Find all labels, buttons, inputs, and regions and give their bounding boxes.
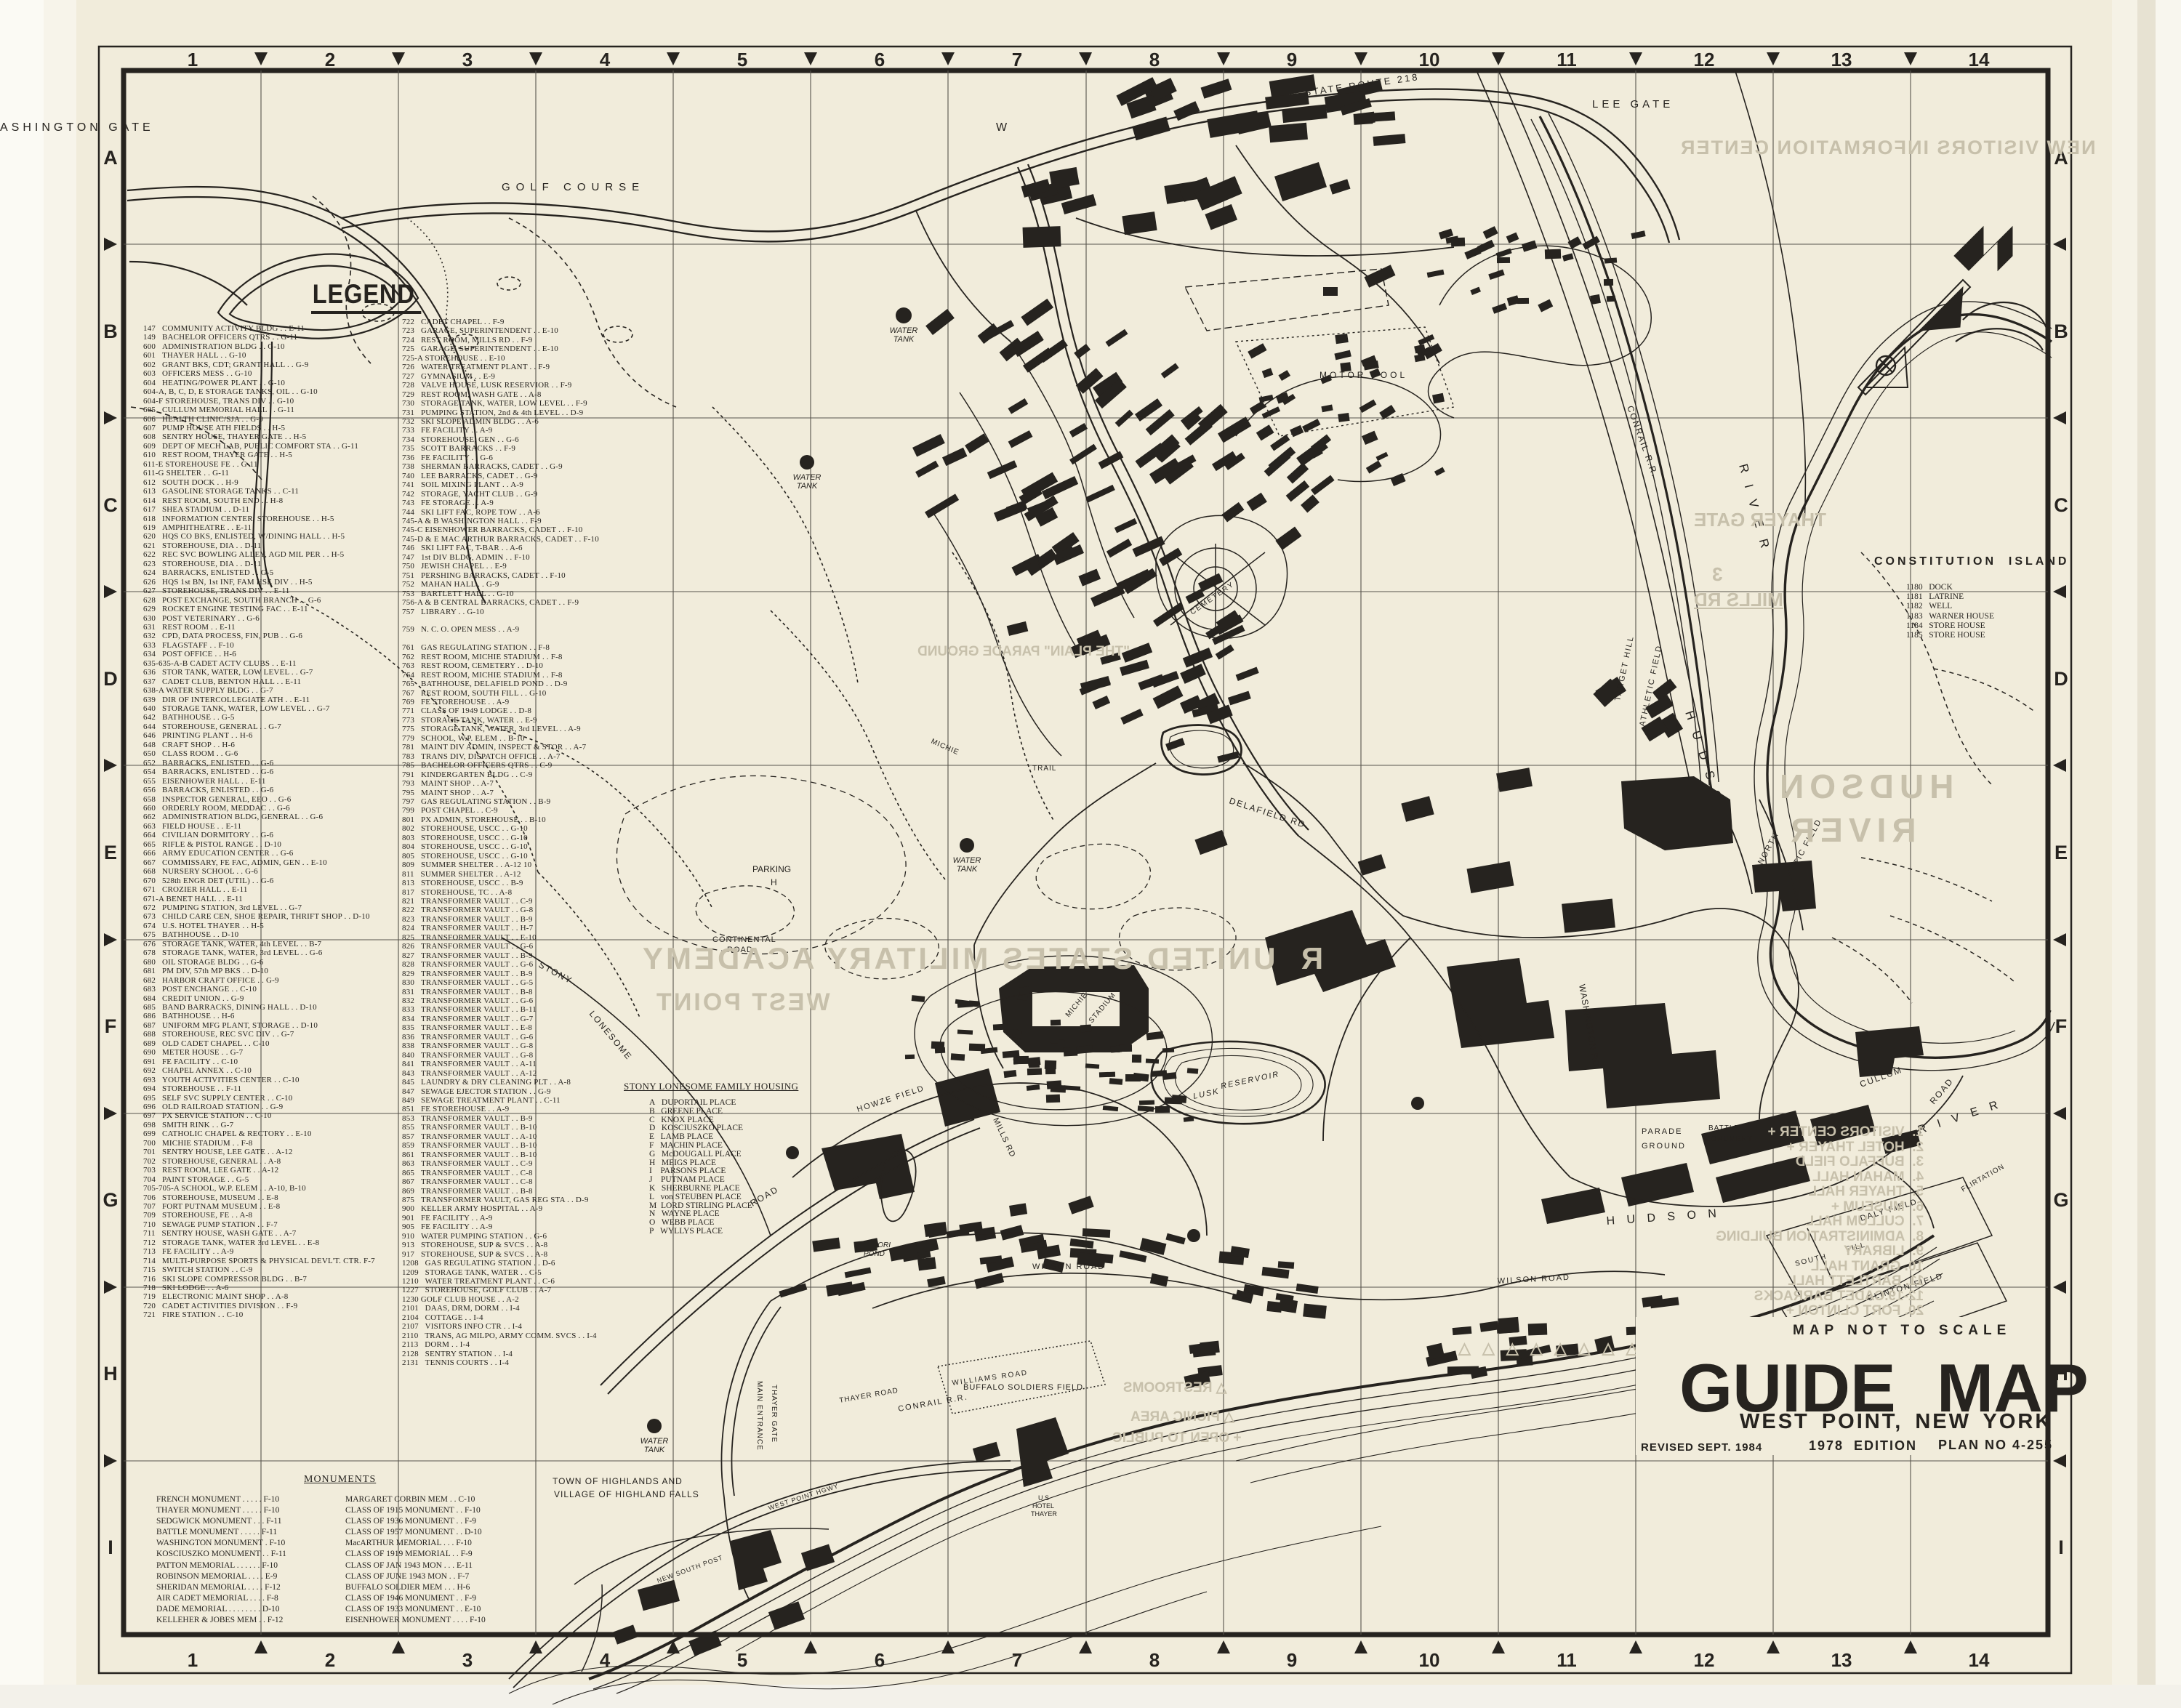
svg-text:WILSON ROAD: WILSON ROAD xyxy=(1032,1262,1105,1271)
svg-text:HOTEL: HOTEL xyxy=(1032,1502,1054,1510)
svg-text:7: 7 xyxy=(1012,49,1022,71)
svg-text:6: 6 xyxy=(875,49,885,71)
svg-text:9: 9 xyxy=(1287,1649,1297,1671)
svg-text:THAYER ROAD: THAYER ROAD xyxy=(839,1387,899,1405)
svg-text:THAYER: THAYER xyxy=(1031,1510,1057,1518)
svg-text:D: D xyxy=(2054,668,2068,690)
svg-text:THAYER GATE: THAYER GATE xyxy=(770,1385,778,1443)
svg-text:G: G xyxy=(103,1189,118,1211)
svg-text:6: 6 xyxy=(875,1649,885,1671)
svg-text:C: C xyxy=(103,494,118,516)
svg-text:VILLAGE OF HIGHLAND FALLS: VILLAGE OF HIGHLAND FALLS xyxy=(554,1489,699,1499)
svg-text:13: 13 xyxy=(1831,1649,1852,1671)
svg-text:MILLS RD: MILLS RD xyxy=(991,1116,1017,1159)
svg-text:1: 1 xyxy=(188,1649,198,1671)
svg-text:I: I xyxy=(2058,1536,2064,1558)
svg-text:F: F xyxy=(2055,1015,2068,1037)
svg-text:D: D xyxy=(103,668,118,690)
svg-text:DELAFIELD RD: DELAFIELD RD xyxy=(1228,796,1307,830)
svg-text:F: F xyxy=(105,1015,117,1037)
svg-text:2: 2 xyxy=(325,49,335,71)
svg-text:TANK: TANK xyxy=(893,335,915,344)
svg-text:ROAD: ROAD xyxy=(749,1184,781,1208)
svg-text:A: A xyxy=(103,147,118,169)
svg-text:7: 7 xyxy=(1012,1649,1022,1671)
svg-text:B: B xyxy=(103,321,118,342)
svg-text:MICHIE: MICHIE xyxy=(930,738,960,757)
svg-text:BUFFALO SOLDIERS FIELD: BUFFALO SOLDIERS FIELD xyxy=(963,1383,1083,1392)
svg-text:5: 5 xyxy=(737,49,747,71)
svg-text:HOWZE FIELD: HOWZE FIELD xyxy=(856,1084,925,1113)
svg-text:RESERVOIR: RESERVOIR xyxy=(1220,1070,1280,1091)
svg-text:GOLF COURSE: GOLF COURSE xyxy=(502,181,645,193)
svg-text:GROUND: GROUND xyxy=(1642,1142,1686,1151)
svg-text:TOWN OF HIGHLANDS AND: TOWN OF HIGHLANDS AND xyxy=(553,1476,683,1486)
svg-text:MOTOR POOL: MOTOR POOL xyxy=(1320,370,1407,380)
svg-text:STADIUM: STADIUM xyxy=(1088,991,1117,1025)
svg-text:NEW SOUTH POST: NEW SOUTH POST xyxy=(656,1554,724,1584)
svg-text:TRAIL: TRAIL xyxy=(1032,765,1056,773)
svg-text:LUSK: LUSK xyxy=(1192,1087,1220,1101)
svg-text:11: 11 xyxy=(1557,1649,1577,1671)
svg-text:PARADE: PARADE xyxy=(1642,1127,1682,1136)
svg-text:ROAD: ROAD xyxy=(1928,1076,1956,1106)
svg-text:E: E xyxy=(2055,842,2068,863)
svg-text:12: 12 xyxy=(1694,49,1715,71)
svg-text:H: H xyxy=(771,877,777,887)
svg-text:U S: U S xyxy=(1038,1494,1049,1502)
svg-text:WEST POINT HGWY: WEST POINT HGWY xyxy=(768,1482,840,1512)
svg-text:10: 10 xyxy=(1419,49,1440,71)
svg-text:I: I xyxy=(108,1536,113,1558)
svg-text:WASHINGTON GATE: WASHINGTON GATE xyxy=(0,121,1011,134)
svg-text:10: 10 xyxy=(1419,1649,1440,1671)
svg-text:R I V E R: R I V E R xyxy=(1916,1097,2004,1136)
svg-text:WILSON ROAD: WILSON ROAD xyxy=(1498,1273,1571,1286)
svg-text:5: 5 xyxy=(737,1649,747,1671)
svg-text:G: G xyxy=(2053,1189,2068,1211)
svg-text:R I V E R: R I V E R xyxy=(1736,462,1773,554)
svg-text:MAIN ENTRANCE: MAIN ENTRANCE xyxy=(755,1381,763,1451)
svg-text:9: 9 xyxy=(1287,49,1297,71)
svg-text:13: 13 xyxy=(1831,49,1852,71)
svg-text:11: 11 xyxy=(1557,49,1577,71)
svg-text:8: 8 xyxy=(1149,1649,1160,1671)
svg-text:WATER: WATER xyxy=(890,326,918,335)
svg-text:4: 4 xyxy=(600,49,611,71)
svg-text:H U D S O N: H U D S O N xyxy=(1606,1207,1721,1228)
svg-text:WATER: WATER xyxy=(640,1437,669,1446)
svg-text:2: 2 xyxy=(325,1649,335,1671)
svg-text:TANK: TANK xyxy=(797,482,818,491)
svg-text:PARKING: PARKING xyxy=(752,864,791,874)
svg-text:TANK: TANK xyxy=(957,865,978,874)
svg-text:8: 8 xyxy=(1149,49,1160,71)
svg-text:12: 12 xyxy=(1694,1649,1715,1671)
svg-text:LEE GATE: LEE GATE xyxy=(1592,98,1674,110)
svg-text:TANK: TANK xyxy=(644,1446,665,1454)
svg-text:CONRAIL R.R.: CONRAIL R.R. xyxy=(897,1393,968,1414)
svg-text:MICHIE: MICHIE xyxy=(1064,991,1090,1018)
svg-text:H: H xyxy=(103,1363,118,1385)
svg-text:E: E xyxy=(104,842,117,863)
svg-text:WATER: WATER xyxy=(793,473,822,482)
svg-text:C: C xyxy=(2054,494,2068,516)
svg-text:1: 1 xyxy=(188,49,198,71)
svg-text:3: 3 xyxy=(462,1649,473,1671)
svg-text:3: 3 xyxy=(462,49,473,71)
svg-text:B: B xyxy=(2054,321,2068,342)
svg-text:14: 14 xyxy=(1969,49,1990,71)
svg-text:FLIRTATION: FLIRTATION xyxy=(1960,1163,2006,1194)
svg-text:14: 14 xyxy=(1969,1649,1990,1671)
svg-text:WATER: WATER xyxy=(953,856,981,865)
